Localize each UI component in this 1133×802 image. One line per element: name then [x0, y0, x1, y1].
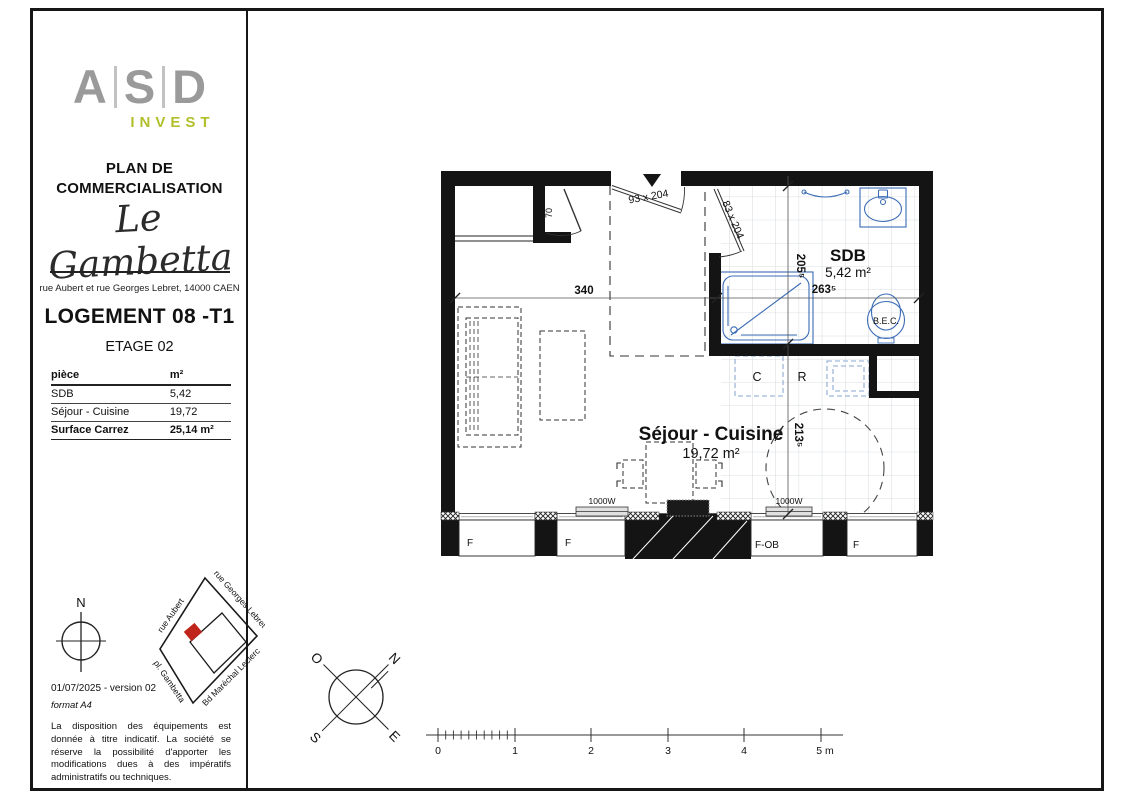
- desk: [540, 331, 585, 420]
- building-marker: [184, 623, 202, 641]
- room-name: Séjour - Cuisine: [51, 404, 170, 422]
- pillar-cap: [667, 500, 709, 516]
- header-m2: m²: [170, 367, 231, 385]
- scale-tick-label: 5 m: [816, 745, 834, 757]
- divider-rule: [50, 271, 230, 273]
- areas-table: pièce m² SDB 5,42 Séjour - Cuisine 19,72…: [51, 367, 231, 440]
- scale-tick-label: 3: [665, 745, 671, 757]
- wall: [441, 171, 455, 516]
- chair-left: [623, 460, 643, 488]
- format-label: format A4: [51, 700, 92, 711]
- dimension-label: 213⁵: [792, 423, 804, 448]
- pier: [917, 516, 933, 556]
- sidebar: A S D INVEST PLAN DE COMMERCIALISATION L…: [33, 11, 248, 788]
- window-label: F: [565, 538, 571, 549]
- room-label-sejour: Séjour - Cuisine: [639, 424, 784, 445]
- room-area: 5,42: [170, 385, 231, 404]
- room-name: SDB: [51, 385, 170, 404]
- logo-invest: INVEST: [65, 114, 215, 131]
- version-label: 01/07/2025 - version 02: [51, 683, 156, 694]
- door-size-label: 70: [544, 208, 554, 218]
- compass-s: S: [307, 729, 324, 746]
- residence-name: Le Gambetta: [31, 191, 248, 288]
- entrance-arrow-icon: [643, 174, 661, 187]
- logo-letter-s: S: [124, 63, 155, 110]
- room-area: 19,72: [170, 404, 231, 422]
- table-total-row: Surface Carrez 25,14 m²: [51, 422, 231, 440]
- entrance-zone-boundary: [610, 186, 705, 356]
- street-label: rue Georges Lebret: [212, 568, 265, 630]
- scale-bar: 0 1 2 3 4 5 m: [426, 728, 843, 757]
- scale-labels: 0 1 2 3 4 5 m: [435, 745, 834, 757]
- compass-rose-icon: N E S O: [278, 611, 442, 785]
- chair-armrest: [617, 463, 621, 487]
- logo-divider: [162, 66, 165, 108]
- room-label-sdb: SDB: [830, 246, 866, 265]
- closet-sliding-door: [455, 236, 533, 241]
- chair-right: [696, 460, 716, 488]
- total-label: Surface Carrez: [51, 422, 170, 440]
- logo-letters: A S D: [33, 63, 246, 110]
- table-row: Séjour - Cuisine 19,72: [51, 404, 231, 422]
- scale-tick-label: 0: [435, 745, 441, 757]
- dimension-label: 263⁵: [812, 284, 837, 296]
- table-row: SDB 5,42: [51, 385, 231, 404]
- pier: [441, 516, 459, 556]
- compass-o: O: [308, 649, 326, 667]
- header-piece: pièce: [51, 367, 170, 385]
- disclaimer-text: La disposition des équipements est donné…: [51, 721, 231, 785]
- asd-invest-logo: A S D INVEST: [33, 63, 246, 131]
- dimension-label: 340: [574, 285, 593, 297]
- floor-plan: SDB 5,42 m² Séjour - Cuisine 19,72 m² B.…: [278, 19, 1133, 802]
- room-area-sejour: 19,72 m²: [682, 446, 739, 462]
- duct-wall: [869, 391, 919, 398]
- scale-tick-label: 2: [588, 745, 594, 757]
- fridge-label: R: [797, 370, 806, 384]
- unit-title: LOGEMENT 08 -T1: [33, 305, 246, 329]
- window-label: F-OB: [755, 540, 779, 551]
- total-value: 25,14 m²: [170, 422, 231, 440]
- pier: [823, 516, 847, 556]
- window-label: F: [853, 540, 859, 551]
- areas-table-header: pièce m²: [51, 367, 231, 385]
- scale-tick-label: 1: [512, 745, 518, 757]
- window-label: F: [467, 538, 473, 549]
- street-label: Bd Maréchal Leclerc: [200, 645, 262, 707]
- cupboard-label: C: [752, 370, 761, 384]
- wall: [709, 344, 919, 356]
- wall: [919, 171, 933, 516]
- compass-e: E: [386, 728, 403, 745]
- document-frame: A S D INVEST PLAN DE COMMERCIALISATION L…: [30, 8, 1104, 791]
- logo-letter-d: D: [172, 63, 206, 110]
- logo-letter-a: A: [73, 63, 107, 110]
- water-heater-label: B.E.C.: [873, 316, 899, 326]
- pier: [535, 516, 557, 556]
- radiator-label: 1000W: [776, 496, 803, 506]
- north-arrow-icon: N: [55, 591, 125, 681]
- wall: [441, 171, 611, 186]
- floor-label: ETAGE 02: [33, 339, 246, 355]
- structural-pillar: [625, 514, 751, 559]
- radiator-label: 1000W: [589, 496, 616, 506]
- address: rue Aubert et rue Georges Lebret, 14000 …: [33, 283, 246, 294]
- room-area-sdb: 5,42 m²: [825, 265, 871, 280]
- wall: [681, 171, 933, 186]
- logo-divider: [114, 66, 117, 108]
- scale-tick-label: 4: [741, 745, 747, 757]
- dimension-label: 205⁵: [794, 254, 806, 279]
- north-letter: N: [76, 595, 85, 610]
